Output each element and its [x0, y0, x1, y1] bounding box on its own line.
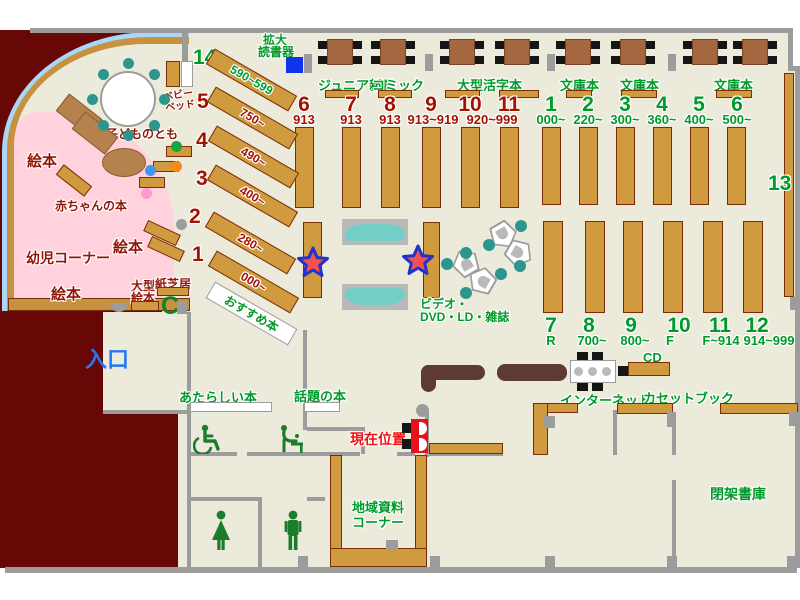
shelf-column-middle_top [381, 127, 400, 208]
male-toilet-icon [281, 510, 305, 552]
shelf-new-books [190, 402, 272, 412]
shelf-column-right_top [690, 127, 709, 205]
shelf-column-middle_top [461, 127, 480, 208]
wall-toilet-v1 [258, 497, 262, 568]
outside-area-bottomleft [0, 412, 178, 568]
shelf-range-bottom_right: 700~ [577, 333, 606, 348]
baby-change-icon [276, 424, 306, 454]
kids-step-3 [139, 177, 165, 188]
label-picture-books-3: 絵本 [51, 283, 81, 304]
reading-table [565, 39, 591, 65]
label-current-position: 現在位置 [350, 429, 406, 449]
label-picture-books-2: 絵本 [113, 236, 143, 257]
shelf-column-bottom_right [543, 221, 563, 313]
service-desk-counter [497, 364, 567, 381]
shelf-column-right_top [616, 127, 635, 205]
shelf-range-right_top: 400~ [684, 112, 713, 127]
kids-round-table [100, 71, 156, 127]
kids-chair [123, 58, 134, 69]
pillar-kids [176, 219, 187, 230]
pillar-cassette-2 [789, 412, 798, 426]
diagonal-shelf-number: 4 [196, 129, 208, 153]
service-desk-l-leg [421, 365, 436, 392]
shelf-range-middle_top: 913 [340, 112, 362, 127]
reading-table [327, 39, 353, 65]
av-chair [483, 239, 495, 251]
bench-bottom-seat [345, 288, 405, 305]
shelf-range-middle_top: 913~919 [408, 112, 459, 127]
table-chair [768, 41, 777, 49]
av-chair [514, 260, 526, 272]
shelf-range-middle_top: 913 [379, 112, 401, 127]
wall-lobby-right [187, 312, 191, 568]
pillar-magnifier [304, 54, 312, 73]
table-chair [495, 56, 504, 64]
table-chair [440, 41, 449, 49]
internet-seat [602, 367, 611, 376]
wall-topright-v [788, 28, 793, 70]
label-kodomo: 子どものとも [106, 125, 178, 142]
shelf-column-bottom_right [585, 221, 605, 313]
shelf-range-bottom_right: R [546, 333, 555, 348]
shelf-range-middle_top: 913 [293, 112, 315, 127]
reading-table [380, 39, 406, 65]
shelf-corner-v [533, 403, 548, 455]
table-chair [495, 41, 504, 49]
shelf-marker-right [429, 443, 503, 454]
label-closed-stacks: 閉架書庫 [710, 484, 766, 504]
table-chair [530, 41, 539, 49]
pillar-cassette-1 [667, 412, 676, 427]
table-chair [530, 56, 539, 64]
shelf-column-right_top [727, 127, 746, 205]
table-chair [556, 56, 565, 64]
shelf-range-bottom_right: F~914 [702, 333, 739, 348]
av-chair [460, 287, 472, 299]
female-toilet-icon [209, 510, 233, 552]
internet-chair-1 [577, 352, 588, 360]
shelf-range-right_top: 220~ [573, 112, 602, 127]
av-booth-screen [495, 226, 510, 241]
shelf-column-middle_top [422, 127, 441, 208]
wall-internet-v [613, 410, 617, 455]
kids-chair [98, 120, 109, 131]
table-chair [718, 56, 727, 64]
shelf-column-bottom_right [623, 221, 643, 313]
shelf-topic-books [304, 402, 340, 412]
shelf-range-right_top: 000~ [536, 112, 565, 127]
wall-toilet-h5 [307, 497, 325, 501]
shelf-cassette-1 [617, 403, 673, 414]
shelf-range-bottom_right: 914~999 [744, 333, 795, 348]
wall-topicroom-v [303, 330, 307, 430]
table-chair [353, 41, 362, 49]
shelf-large-picture [131, 301, 159, 311]
label-picture-books-1: 絵本 [27, 150, 57, 171]
shelf-column-middle_top [500, 127, 519, 208]
baby-bed-shelf [166, 61, 180, 87]
av-booth-screen [510, 245, 525, 260]
table-chair [406, 56, 415, 64]
kids-chair [149, 69, 160, 80]
table-chair [646, 41, 655, 49]
pillar-top [425, 54, 433, 71]
library-floor-map: 拡大 読書器 ジュニア新書 コミック 大型活字本 文庫本 文庫本 文庫本 13 … [0, 0, 800, 600]
shelf-range-bottom_right: 800~ [620, 333, 649, 348]
table-chair [591, 56, 600, 64]
kids-chair [149, 120, 160, 131]
reading-table [742, 39, 768, 65]
kids-chair [87, 94, 98, 105]
av-booth-screen [476, 274, 491, 289]
star-marker-1 [296, 245, 330, 279]
table-chair [683, 41, 692, 49]
pillar-marker [416, 404, 429, 417]
stool-green [171, 141, 182, 152]
local-shelf-bottom [330, 548, 427, 567]
reading-table [504, 39, 530, 65]
table-chair [440, 56, 449, 64]
internet-chair-2 [592, 352, 603, 360]
bench-bottom [342, 284, 408, 310]
diagonal-shelf-number: 1 [192, 243, 204, 267]
reading-table [620, 39, 646, 65]
av-chair [460, 247, 472, 259]
local-step [386, 540, 398, 550]
table-chair [318, 56, 327, 64]
label-video-2: DVD・LD・雑誌 [420, 308, 509, 325]
table-chair [318, 41, 327, 49]
wall-bottom [5, 567, 797, 573]
table-chair [611, 56, 620, 64]
wall-right [795, 66, 800, 568]
table-chair [556, 41, 565, 49]
shelf-column-right_top [542, 127, 561, 205]
table-chair [733, 56, 742, 64]
shelf-column-middle_top [342, 127, 361, 208]
table-chair [611, 41, 620, 49]
pillar-bottom [787, 556, 797, 568]
shelf-column-bottom_right [743, 221, 763, 313]
pillar-bottom [298, 556, 308, 568]
table-chair [353, 56, 362, 64]
table-chair [646, 56, 655, 64]
wall-toilet-h4 [191, 497, 258, 501]
pillar-13 [790, 297, 800, 310]
kids-rug-oval [102, 148, 146, 177]
table-chair [406, 41, 415, 49]
shelf-column-right_top [653, 127, 672, 205]
label-infant-corner: 幼児コーナー [26, 248, 110, 268]
stool-pink [141, 188, 152, 199]
shelf-column-bottom_right [703, 221, 723, 313]
av-chair [515, 220, 527, 232]
label-13: 13 [768, 172, 791, 196]
table-chair [683, 56, 692, 64]
kids-chair [159, 94, 170, 105]
table-chair [733, 41, 742, 49]
kids-chair [123, 130, 134, 141]
label-local-2: コーナー [338, 512, 418, 531]
wheelchair-icon [193, 424, 225, 454]
magnifier-device [286, 57, 303, 73]
av-chair [441, 258, 453, 270]
pillar-bottom [667, 556, 677, 568]
shelf-cd [628, 362, 670, 376]
shelf-column-middle_top [295, 127, 314, 208]
shelf-cassette-2 [720, 403, 798, 414]
shelf-range-right_top: 360~ [647, 112, 676, 127]
wall-top [30, 28, 790, 33]
diagonal-shelf-number: 2 [189, 205, 201, 229]
pillar-corner [543, 416, 555, 428]
marker-chair-2 [402, 439, 411, 449]
table-chair [475, 41, 484, 49]
av-chair [495, 268, 507, 280]
wall-lobby-bottom [103, 410, 191, 414]
table-chair [371, 56, 380, 64]
wall-cassette-v2 [672, 480, 676, 568]
marker-chair-1 [402, 423, 411, 433]
pillar-bottom [545, 556, 555, 568]
shelf-column-bottom_right [663, 221, 683, 313]
pillar-phone [177, 301, 187, 314]
shelf-range-right_top: 300~ [610, 112, 639, 127]
table-chair [591, 41, 600, 49]
shelf-column-right_top [579, 127, 598, 205]
pillar-top [547, 54, 555, 71]
internet-seat [574, 367, 583, 376]
table-chair [475, 56, 484, 64]
reading-table [692, 39, 718, 65]
reading-table [449, 39, 475, 65]
bench-top-seat [345, 224, 405, 241]
internet-side-table [618, 366, 628, 376]
stool-blue [145, 165, 156, 176]
label-baby-books: 赤ちゃんの本 [55, 197, 127, 214]
bench-top [342, 219, 408, 245]
pillar-bottom [430, 556, 440, 568]
shelf-number-middle_top: 11 [498, 93, 520, 117]
star-marker-2 [401, 243, 435, 277]
label-entrance: 入口 [85, 342, 129, 374]
table-chair [768, 56, 777, 64]
shelf-range-right_top: 500~ [722, 112, 751, 127]
table-chair [718, 41, 727, 49]
table-chair [371, 41, 380, 49]
shelf-range-bottom_right: F [666, 333, 674, 348]
kids-chair [98, 69, 109, 80]
pillar-top [668, 54, 676, 71]
internet-seat [588, 367, 597, 376]
stool-orange [171, 161, 182, 172]
